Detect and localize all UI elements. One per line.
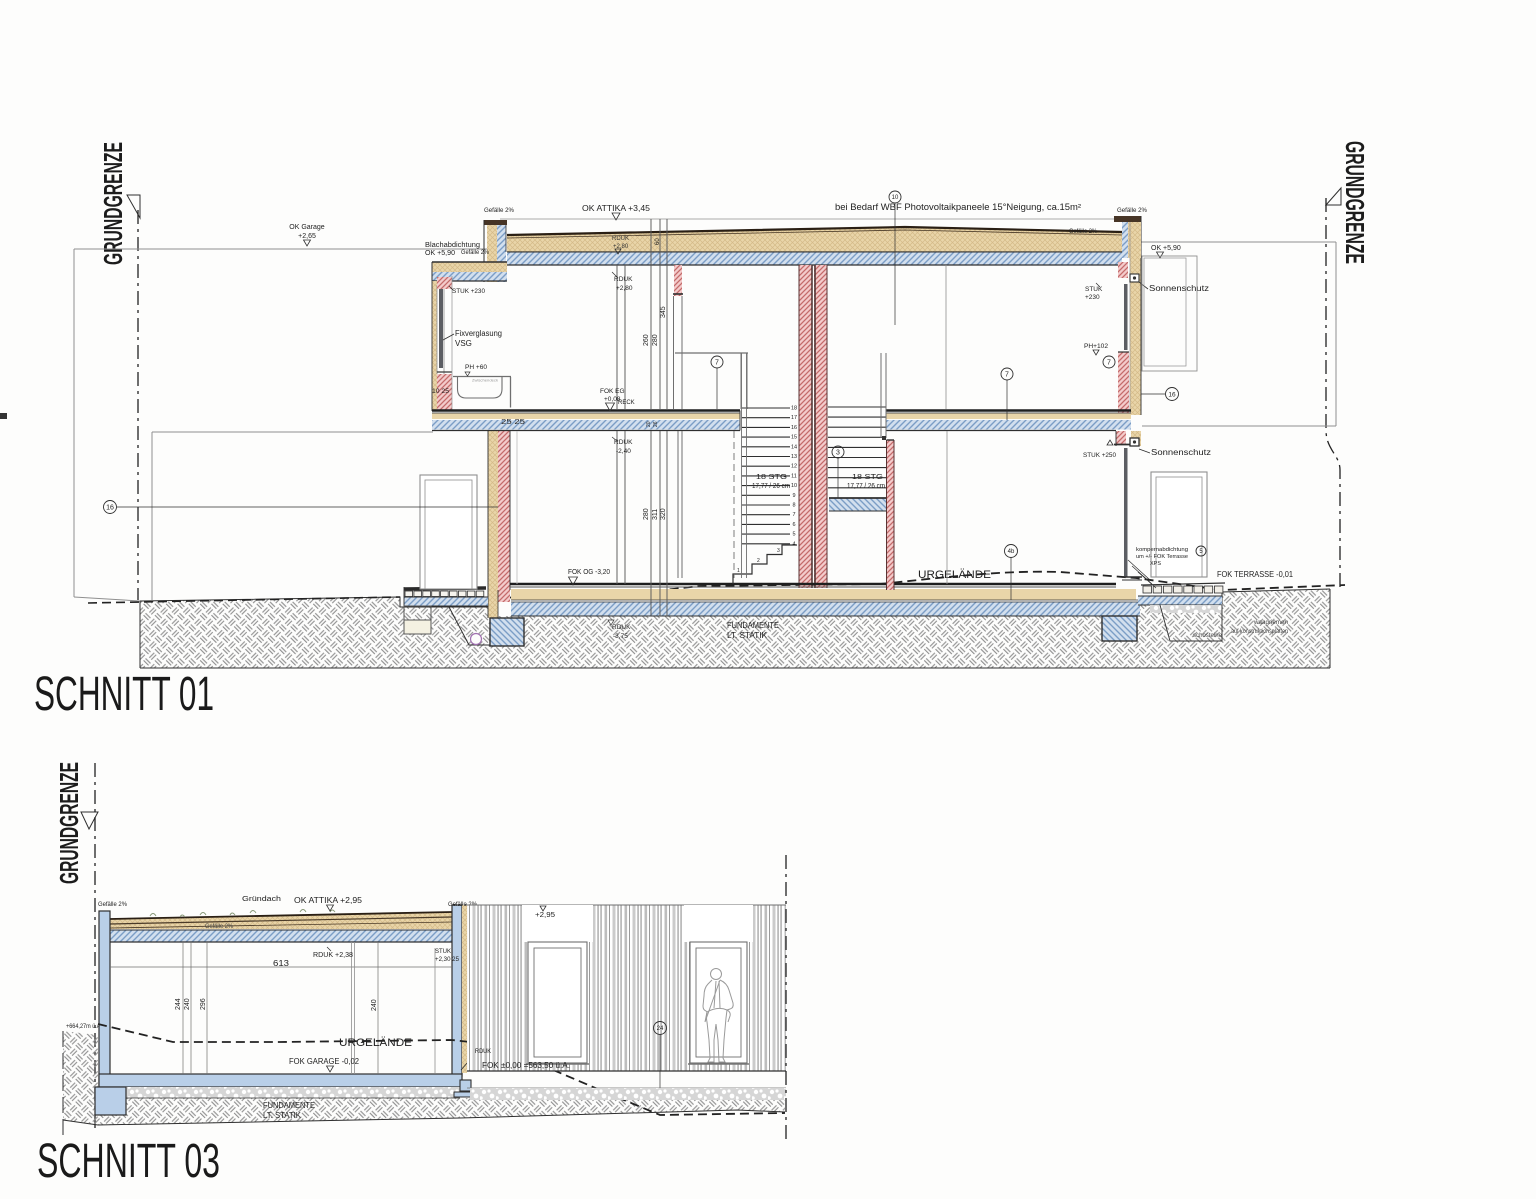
svg-text:Zwischendeck: Zwischendeck — [472, 378, 498, 383]
svg-text:RDUK: RDUK — [612, 236, 629, 242]
svg-text:296: 296 — [200, 998, 207, 1010]
svg-text:+230: +230 — [1085, 294, 1100, 301]
svg-text:schosteine: schosteine — [1193, 633, 1223, 639]
svg-text:2: 2 — [757, 558, 760, 564]
svg-text:VSG: VSG — [455, 339, 472, 348]
svg-text:STUK: STUK — [435, 949, 451, 955]
svg-text:280: 280 — [652, 334, 659, 346]
svg-text:16: 16 — [1168, 391, 1176, 398]
svg-text:18 STG: 18 STG — [852, 474, 883, 481]
svg-text:14: 14 — [791, 444, 797, 450]
svg-text:5: 5 — [792, 532, 795, 538]
svg-text:FUNDAMENTE: FUNDAMENTE — [727, 621, 779, 630]
svg-text:RDUK: RDUK — [612, 624, 631, 631]
svg-text:kompernabdichtung: kompernabdichtung — [1136, 547, 1188, 553]
svg-text:FOK TERRASSE -0,01: FOK TERRASSE -0,01 — [1217, 570, 1294, 579]
svg-text:26: 26 — [653, 421, 659, 427]
svg-text:15: 15 — [791, 435, 797, 441]
svg-text:10: 10 — [791, 483, 797, 489]
svg-text:16: 16 — [791, 425, 797, 431]
svg-text:Gefälle 2%: Gefälle 2% — [461, 250, 490, 256]
svg-text:Sonnenschutz: Sonnenschutz — [1149, 284, 1209, 293]
svg-text:8: 8 — [792, 503, 795, 509]
svg-text:240: 240 — [184, 998, 191, 1010]
svg-text:1: 1 — [737, 568, 740, 574]
svg-text:Blachabdichtung: Blachabdichtung — [425, 242, 480, 249]
svg-text:18: 18 — [791, 406, 797, 412]
svg-text:Gefälle 2%: Gefälle 2% — [205, 924, 234, 930]
svg-text:+664,27m ü.A.: +664,27m ü.A. — [66, 1024, 102, 1030]
svg-text:7: 7 — [1107, 359, 1111, 366]
svg-text:PH +60: PH +60 — [465, 364, 487, 371]
svg-text:16: 16 — [106, 504, 114, 511]
svg-text:10 25: 10 25 — [432, 388, 449, 395]
svg-text:Fixverglasung: Fixverglasung — [455, 329, 502, 338]
svg-text:Gefälle 2%: Gefälle 2% — [484, 207, 514, 214]
svg-text:STUK +250: STUK +250 — [1083, 452, 1116, 459]
svg-text:244: 244 — [175, 998, 182, 1010]
svg-text:345: 345 — [660, 306, 667, 318]
svg-text:OK ATTIKA +3,45: OK ATTIKA +3,45 — [582, 204, 651, 213]
svg-text:12: 12 — [791, 464, 797, 470]
svg-text:GRUNDGRENZE: GRUNDGRENZE — [1340, 141, 1370, 264]
svg-text:Sonnenschutz: Sonnenschutz — [1151, 448, 1211, 457]
svg-text:SCHNITT 03: SCHNITT 03 — [37, 1135, 220, 1188]
svg-text:URGELÄNDE: URGELÄNDE — [339, 1037, 412, 1049]
svg-text:Gefälle 2%: Gefälle 2% — [98, 902, 128, 908]
svg-text:17,77 / 26 cm: 17,77 / 26 cm — [752, 483, 790, 490]
svg-text:11: 11 — [791, 473, 797, 479]
svg-text:3: 3 — [836, 449, 840, 456]
svg-text:RDUK +2,38: RDUK +2,38 — [313, 952, 353, 959]
svg-text:+2,65: +2,65 — [298, 233, 316, 240]
svg-text:LT. STATIK: LT. STATIK — [263, 1111, 302, 1120]
svg-text:um +/- FOK Terrasse: um +/- FOK Terrasse — [1136, 554, 1188, 560]
svg-text:17,77 / 26 cm: 17,77 / 26 cm — [847, 483, 885, 490]
svg-text:FOK EG: FOK EG — [600, 388, 625, 395]
svg-text:24: 24 — [657, 1026, 664, 1032]
svg-text:Gefälle 2%: Gefälle 2% — [1069, 229, 1098, 235]
svg-text:20: 20 — [646, 421, 652, 427]
svg-text:RDUK: RDUK — [475, 1049, 491, 1055]
svg-text:260: 260 — [643, 334, 650, 346]
svg-text:STUK: STUK — [1085, 286, 1103, 293]
svg-text:240: 240 — [371, 999, 378, 1011]
svg-text:613: 613 — [273, 959, 290, 968]
svg-text:OK ATTIKA +2,95: OK ATTIKA +2,95 — [294, 896, 363, 905]
svg-text:bei Bedarf WBF Photovoltaikpan: bei Bedarf WBF Photovoltaikpaneele 15°Ne… — [835, 202, 1081, 212]
svg-text:18 STG: 18 STG — [756, 474, 787, 481]
svg-text:RDUK: RDUK — [614, 439, 633, 446]
svg-text:6: 6 — [792, 522, 795, 528]
svg-text:7: 7 — [792, 512, 795, 518]
svg-text:FOK OG -3,20: FOK OG -3,20 — [568, 569, 610, 576]
svg-text:311: 311 — [652, 509, 659, 520]
svg-text:7: 7 — [1005, 371, 1009, 378]
svg-text:10: 10 — [892, 195, 899, 201]
svg-text:FOK ±0,00 =563,50 ü.A.: FOK ±0,00 =563,50 ü.A. — [482, 1061, 570, 1070]
svg-text:+2,80: +2,80 — [616, 285, 633, 292]
svg-text:-3,75: -3,75 — [613, 633, 628, 640]
svg-text:OK +5,90: OK +5,90 — [1151, 245, 1181, 252]
svg-text:280: 280 — [643, 508, 650, 520]
svg-text:PH+102: PH+102 — [1084, 343, 1108, 350]
svg-text:+2,30 25: +2,30 25 — [435, 957, 460, 963]
svg-text:320: 320 — [660, 508, 667, 520]
svg-text:4: 4 — [792, 541, 795, 547]
svg-text:17: 17 — [791, 415, 797, 421]
svg-text:SCHNITT 01: SCHNITT 01 — [34, 668, 214, 721]
svg-text:3: 3 — [777, 548, 780, 554]
svg-text:URGELÄNDE: URGELÄNDE — [918, 569, 991, 581]
svg-text:4b: 4b — [1008, 549, 1015, 555]
svg-text:-2,40: -2,40 — [616, 448, 631, 455]
svg-text:GRUNDGRENZE: GRUNDGRENZE — [54, 762, 84, 884]
svg-text:RECK: RECK — [618, 400, 635, 406]
svg-text:FOK GARAGE -0,02: FOK GARAGE -0,02 — [289, 1057, 360, 1066]
svg-text:7: 7 — [715, 359, 719, 366]
svg-text:13: 13 — [791, 454, 797, 460]
svg-text:waagriemen: waagriemen — [1253, 620, 1288, 626]
svg-text:STUK +230: STUK +230 — [452, 288, 485, 295]
svg-text:GRUNDGRENZE: GRUNDGRENZE — [98, 142, 128, 265]
svg-text:9: 9 — [792, 493, 795, 499]
svg-text:+2,95: +2,95 — [535, 912, 555, 919]
svg-text:FUNDAMENTE: FUNDAMENTE — [263, 1101, 315, 1110]
svg-text:LT. STATIK: LT. STATIK — [727, 631, 768, 640]
svg-text:OK +5,90: OK +5,90 — [425, 250, 455, 257]
svg-text:25 25: 25 25 — [501, 419, 525, 426]
svg-text:Gefälle 2%: Gefälle 2% — [1117, 207, 1147, 214]
svg-text:60: 60 — [655, 238, 661, 245]
svg-text:XPS: XPS — [1150, 561, 1161, 567]
svg-text:Gründach: Gründach — [242, 896, 281, 903]
svg-text:OK Garage: OK Garage — [289, 224, 325, 231]
svg-text:auf konstruktionsplatten: auf konstruktionsplatten — [1231, 629, 1288, 635]
